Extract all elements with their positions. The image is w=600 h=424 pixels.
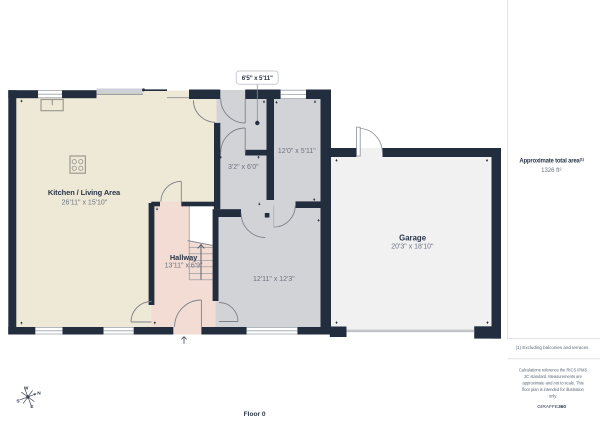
svg-text:12'0" x 5'11": 12'0" x 5'11"	[278, 148, 316, 155]
svg-text:26'11" x 15'10": 26'11" x 15'10"	[62, 199, 108, 206]
svg-text:Approximate total area(1): Approximate total area(1)	[519, 156, 584, 164]
svg-text:1326 ft²: 1326 ft²	[541, 168, 561, 174]
svg-text:Hallway: Hallway	[170, 253, 198, 262]
svg-text:only.: only.	[549, 394, 557, 399]
svg-text:N: N	[37, 391, 41, 397]
svg-text:12'11" x 12'3": 12'11" x 12'3"	[253, 276, 295, 283]
svg-text:W: W	[24, 386, 29, 392]
svg-text:20'3" x 18'10": 20'3" x 18'10"	[391, 243, 434, 250]
svg-text:approximate and not to scale.: approximate and not to scale. This	[522, 381, 583, 386]
svg-text:Garage: Garage	[399, 233, 427, 242]
svg-text:(1) Excluding balconies and te: (1) Excluding balconies and terraces	[516, 345, 590, 350]
svg-text:Floor 0: Floor 0	[244, 411, 266, 418]
svg-text:GIRAFFE360: GIRAFFE360	[537, 404, 566, 410]
svg-text:Calculations reference the RIC: Calculations reference the RICS IPMS	[519, 368, 588, 373]
svg-text:3'2" x 6'0": 3'2" x 6'0"	[228, 164, 259, 171]
svg-text:3C standard. Measurements are: 3C standard. Measurements are	[524, 374, 582, 379]
svg-text:13'11" x 6'9": 13'11" x 6'9"	[165, 263, 203, 270]
svg-text:Kitchen / Living Area: Kitchen / Living Area	[48, 188, 121, 197]
svg-text:6'5" x 5'11": 6'5" x 5'11"	[242, 75, 273, 82]
svg-text:floor plan is intended for ill: floor plan is intended for illustration	[522, 387, 584, 392]
